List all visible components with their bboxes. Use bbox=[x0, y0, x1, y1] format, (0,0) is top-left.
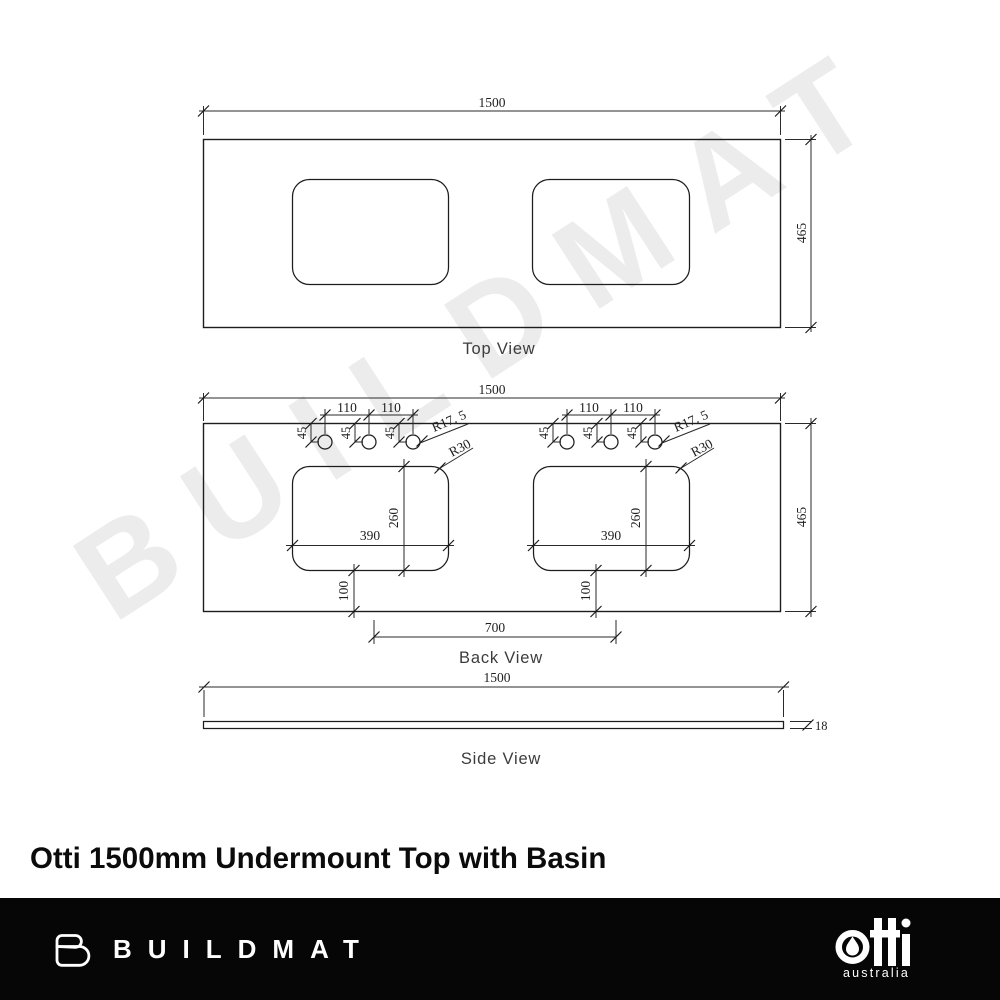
cutout-width-dim-right: 390 bbox=[527, 528, 695, 551]
hole-spacing-value: 110 bbox=[579, 400, 599, 415]
top-view-width-value: 1500 bbox=[479, 95, 506, 110]
buildmat-logo: BUILDMAT bbox=[53, 930, 375, 968]
cutout-bottom-offset-value: 100 bbox=[336, 581, 351, 602]
otti-logo: australia bbox=[832, 914, 928, 985]
otti-i-stem bbox=[902, 934, 910, 966]
corner-radius-callout-right: R30 bbox=[676, 436, 716, 474]
otti-t-stem bbox=[874, 918, 882, 966]
hole-inset-value: 45 bbox=[537, 427, 551, 440]
hole-inset-value: 45 bbox=[339, 427, 353, 440]
cutout-centres-value: 700 bbox=[485, 620, 506, 635]
hole-spacing-value: 110 bbox=[623, 400, 643, 415]
hole-inset-value: 45 bbox=[625, 427, 639, 440]
top-view-depth-dim: 465 bbox=[785, 134, 817, 333]
cutout-bottom-offset-value: 100 bbox=[578, 581, 593, 602]
otti-droplet-icon bbox=[846, 936, 859, 955]
tap-hole bbox=[604, 435, 618, 449]
top-view-depth-value: 465 bbox=[794, 223, 809, 244]
back-view: 1500 110 110 110 110 bbox=[198, 382, 817, 667]
buildmat-logo-icon bbox=[53, 930, 95, 968]
otti-t-stem bbox=[888, 918, 896, 966]
hole-inset-dim: 45 bbox=[339, 418, 363, 448]
tap-hole bbox=[362, 435, 376, 449]
technical-drawing: 1500 465 Top View bbox=[0, 0, 1000, 800]
cutout-width-value: 390 bbox=[601, 528, 622, 543]
back-view-depth-dim: 465 bbox=[785, 418, 817, 617]
tap-hole bbox=[560, 435, 574, 449]
back-view-depth-value: 465 bbox=[794, 507, 809, 528]
otti-logo-mark: australia bbox=[832, 914, 928, 980]
buildmat-logo-text: BUILDMAT bbox=[113, 936, 375, 962]
tap-hole bbox=[406, 435, 420, 449]
hole-inset-dim: 45 bbox=[537, 418, 561, 448]
corner-radius-callout-left: R30 bbox=[435, 436, 474, 474]
page: BUILDMAT 1500 465 Top bbox=[0, 0, 1000, 1000]
side-view: 1500 18 Side View bbox=[199, 670, 828, 768]
tap-hole bbox=[648, 435, 662, 449]
hole-inset-dim: 45 bbox=[581, 418, 605, 448]
product-title: Otti 1500mm Undermount Top with Basin bbox=[30, 842, 606, 876]
hole-spacing-value: 110 bbox=[381, 400, 401, 415]
hole-inset-value: 45 bbox=[383, 427, 397, 440]
otti-tagline: australia bbox=[843, 966, 910, 980]
cutout-bottom-offset-dim-left: 100 bbox=[336, 564, 360, 618]
cutout-bottom-offset-dim-right: 100 bbox=[578, 564, 602, 618]
back-view-width-value: 1500 bbox=[479, 382, 506, 397]
tap-hole bbox=[318, 435, 332, 449]
hole-spacing-dim-right: 110 110 bbox=[562, 400, 661, 434]
hole-radius-value: R17. 5 bbox=[429, 407, 468, 435]
hole-inset-value: 45 bbox=[295, 427, 309, 440]
cutout-centres-dim: 700 bbox=[369, 620, 622, 644]
hole-inset-dim: 45 bbox=[625, 418, 649, 448]
tap-holes bbox=[318, 435, 662, 449]
otti-t-crossbar bbox=[870, 930, 900, 938]
back-view-left-cutout bbox=[293, 467, 449, 571]
hole-inset-value: 45 bbox=[581, 427, 595, 440]
corner-radius-value: R30 bbox=[688, 436, 715, 460]
cutout-depth-value: 260 bbox=[628, 508, 643, 529]
hole-spacing-dim-left: 110 110 bbox=[320, 400, 419, 434]
top-view-benchtop bbox=[204, 140, 781, 328]
back-view-right-cutout bbox=[534, 467, 690, 571]
otti-i-dot bbox=[902, 918, 911, 927]
side-view-thickness-value: 18 bbox=[815, 719, 828, 733]
back-view-label: Back View bbox=[459, 649, 543, 667]
hole-inset-dims: 45 45 45 45 bbox=[295, 418, 649, 448]
side-view-slab bbox=[204, 722, 784, 729]
top-view: 1500 465 Top View bbox=[198, 95, 817, 358]
top-view-width-dim: 1500 bbox=[198, 95, 786, 135]
cutout-width-dim-left: 390 bbox=[286, 528, 454, 551]
top-view-left-cutout bbox=[293, 180, 449, 285]
corner-radius-value: R30 bbox=[446, 436, 473, 460]
top-view-right-cutout bbox=[533, 180, 690, 285]
hole-spacing-value: 110 bbox=[337, 400, 357, 415]
side-view-width-value: 1500 bbox=[484, 670, 511, 685]
side-view-thickness-dim: 18 bbox=[790, 719, 828, 733]
side-view-label: Side View bbox=[461, 750, 541, 768]
side-view-width-dim: 1500 bbox=[199, 670, 790, 717]
top-view-label: Top View bbox=[462, 340, 535, 358]
cutout-depth-dim-left: 260 bbox=[386, 459, 410, 577]
cutout-depth-value: 260 bbox=[386, 508, 401, 529]
hole-inset-dim: 45 bbox=[383, 418, 407, 448]
hole-inset-dim: 45 bbox=[295, 418, 319, 448]
cutout-depth-dim-right: 260 bbox=[628, 459, 652, 577]
footer-bar: BUILDMAT australia bbox=[0, 898, 1000, 1000]
cutout-width-value: 390 bbox=[360, 528, 381, 543]
hole-radius-value: R17. 5 bbox=[671, 407, 710, 435]
